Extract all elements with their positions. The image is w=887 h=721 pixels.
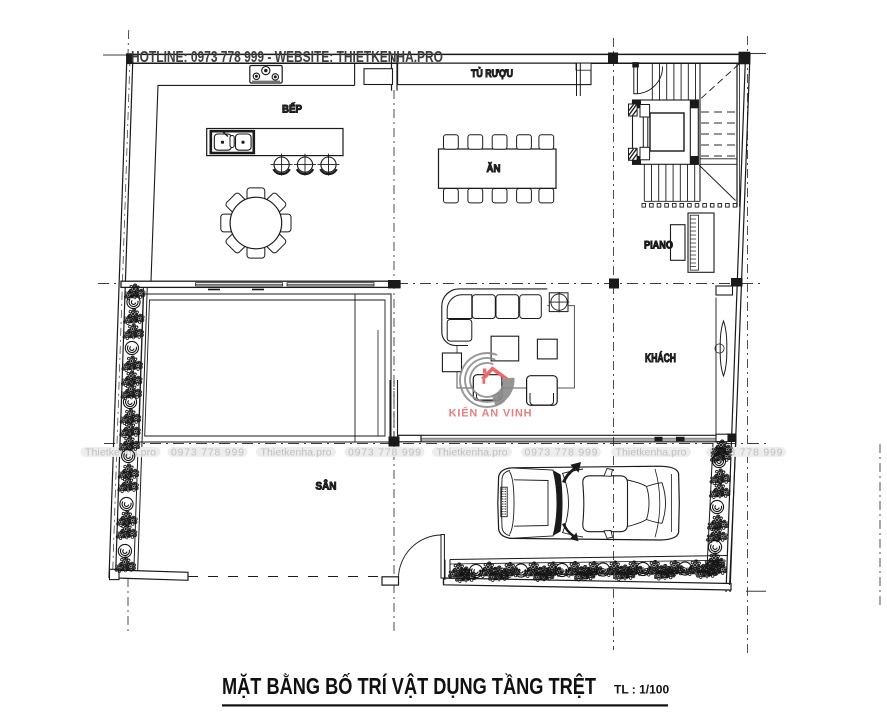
svg-text:TỦ RƯỢU: TỦ RƯỢU bbox=[471, 67, 513, 80]
svg-text:SÂN: SÂN bbox=[316, 480, 337, 493]
svg-text:Thietkenha.pro: Thietkenha.pro bbox=[261, 447, 332, 459]
svg-text:MẶT BẰNG BỐ TRÍ VẬT DỤNG TẦNG: MẶT BẰNG BỐ TRÍ VẬT DỤNG TẦNG TRỆT bbox=[222, 672, 596, 699]
svg-text:HOTLINE: 0973 778 999 - WEBSIT: HOTLINE: 0973 778 999 - WEBSITE: THIETKE… bbox=[131, 49, 443, 66]
svg-text:0973 778 999: 0973 778 999 bbox=[171, 447, 244, 459]
svg-text:0973 778 999: 0973 778 999 bbox=[525, 447, 598, 459]
svg-text:PIANO: PIANO bbox=[644, 240, 673, 252]
svg-text:TL : 1/100: TL : 1/100 bbox=[614, 683, 669, 697]
svg-text:Thietkenha.pro: Thietkenha.pro bbox=[616, 447, 687, 459]
svg-text:KIẾN AN VINH: KIẾN AN VINH bbox=[449, 407, 533, 420]
svg-text:Thietkenha.pro: Thietkenha.pro bbox=[437, 447, 508, 459]
svg-text:BẾP: BẾP bbox=[282, 103, 302, 116]
svg-text:KHÁCH: KHÁCH bbox=[645, 352, 676, 365]
svg-text:ĂN: ĂN bbox=[487, 162, 501, 175]
svg-text:0973 778 999: 0973 778 999 bbox=[348, 447, 421, 459]
